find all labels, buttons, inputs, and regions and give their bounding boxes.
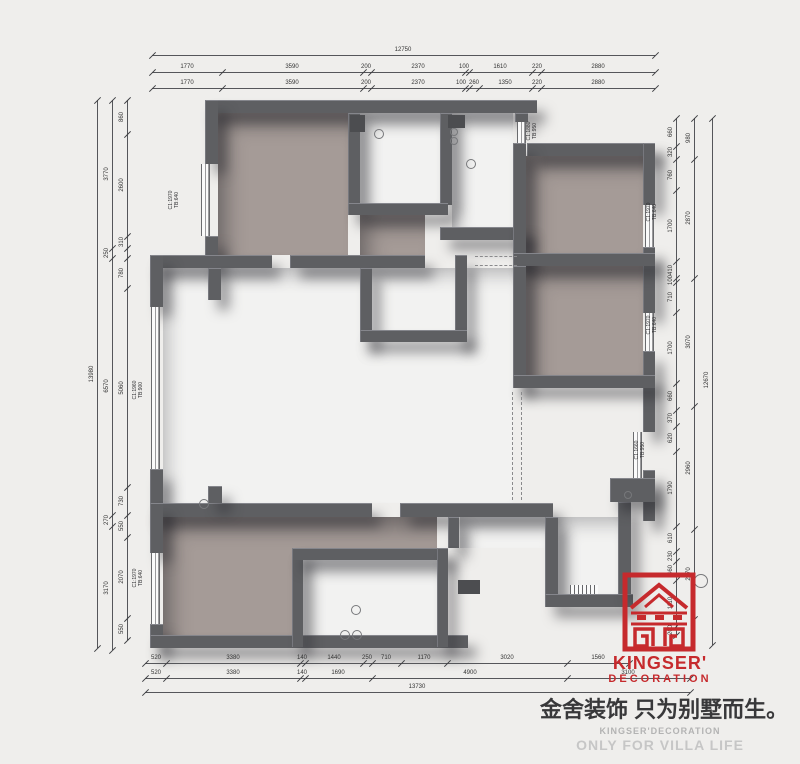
dimension-label: 140 xyxy=(297,670,307,676)
wall-segment xyxy=(348,203,448,215)
hidden-edge-dashed-line xyxy=(512,392,513,500)
dimension-line xyxy=(694,118,695,619)
dimension-label: 3100 xyxy=(621,670,634,676)
wall-segment xyxy=(150,635,468,648)
wall-segment xyxy=(150,503,163,553)
dimension-label: 13730 xyxy=(409,684,426,690)
drain-circle-icon xyxy=(374,129,384,139)
dimension-tick xyxy=(109,647,116,654)
dimension-tick xyxy=(709,642,716,649)
dimension-label: 260 xyxy=(469,80,479,86)
dimension-label: 3380 xyxy=(226,670,239,676)
window-icon xyxy=(517,122,526,143)
column-square xyxy=(350,115,365,132)
floor-plan-canvas: 1275017703590200237010016102202880177035… xyxy=(0,0,800,764)
dimension-label: 200 xyxy=(361,80,371,86)
door-threshold-hatch-icon xyxy=(570,585,598,594)
dimension-label: 250 xyxy=(107,253,117,259)
dimension-label: 3070 xyxy=(689,342,702,348)
dimension-label: 2600 xyxy=(122,185,135,191)
dimension-line xyxy=(152,55,655,56)
window-spec-label: C1:1660TB:950 xyxy=(634,441,646,460)
window-icon xyxy=(151,307,160,469)
room-fill xyxy=(360,113,440,203)
dimension-line xyxy=(127,100,128,640)
wall-segment xyxy=(610,478,655,502)
dimension-label: 3170 xyxy=(107,588,120,594)
dimension-label: 12670 xyxy=(707,380,724,386)
dimension-label: 660 xyxy=(671,396,681,402)
drain-circle-icon xyxy=(450,137,458,145)
dimension-tick xyxy=(691,616,698,623)
wall-segment xyxy=(455,255,467,342)
dimension-tick xyxy=(626,660,633,667)
dimension-label: 220 xyxy=(532,64,542,70)
dimension-label: 220 xyxy=(532,80,542,86)
dimension-label: 200 xyxy=(361,64,371,70)
wall-segment xyxy=(513,253,655,266)
room-fill xyxy=(303,560,437,635)
dimension-label: 3380 xyxy=(226,655,239,661)
dimension-label: 980 xyxy=(689,138,699,144)
dimension-tick xyxy=(687,689,694,696)
dimension-tick xyxy=(652,85,659,92)
dimension-label: 760 xyxy=(671,175,681,181)
dimension-line xyxy=(145,692,690,693)
window-icon xyxy=(151,553,160,624)
room-fill xyxy=(452,113,513,227)
dimension-label: 460 xyxy=(671,570,681,576)
wall-segment xyxy=(513,375,655,388)
brand-footer-slogan: ONLY FOR VILLA LIFE xyxy=(560,737,760,753)
dimension-label: 620 xyxy=(671,438,681,444)
dimension-label: 2370 xyxy=(411,64,424,70)
drain-circle-icon xyxy=(352,630,362,640)
dimension-label: 610 xyxy=(671,538,681,544)
hidden-edge-dashed-line xyxy=(521,392,522,500)
dimension-label: 550 xyxy=(122,629,132,635)
wall-segment xyxy=(513,266,526,387)
drain-circle-icon xyxy=(351,605,361,615)
dimension-label: 1610 xyxy=(493,64,506,70)
dimension-label: 2370 xyxy=(411,80,424,86)
dimension-label: 320 xyxy=(671,152,681,158)
dimension-tick xyxy=(652,52,659,59)
wall-segment xyxy=(545,594,633,607)
dimension-line xyxy=(152,88,655,89)
dimension-label: 4900 xyxy=(463,670,476,676)
wall-segment xyxy=(290,255,425,268)
dimension-label: 100 xyxy=(671,280,681,286)
drain-circle-icon xyxy=(466,159,476,169)
dimension-label: 2880 xyxy=(591,64,604,70)
dimension-label: 3590 xyxy=(285,80,298,86)
dimension-line xyxy=(112,100,113,650)
dimension-label: 140 xyxy=(297,655,307,661)
dimension-label: 2870 xyxy=(689,218,702,224)
wall-segment xyxy=(208,268,221,300)
wall-segment xyxy=(400,503,553,517)
wall-segment xyxy=(643,143,655,205)
brand-subtitle: DECORATION xyxy=(600,673,720,685)
brand-footer-en: KINGSER'DECORATION xyxy=(560,726,760,736)
dimension-label: 270 xyxy=(107,520,117,526)
dimension-label: 1440 xyxy=(327,655,340,661)
dimension-label: 1770 xyxy=(180,64,193,70)
dimension-label: 1770 xyxy=(180,80,193,86)
wall-segment xyxy=(437,548,448,647)
dimension-label: 1110 xyxy=(671,603,683,609)
dimension-line xyxy=(145,678,690,679)
window-spec-label: C1:1970TB:640 xyxy=(168,191,180,210)
hidden-edge-dashed-line xyxy=(475,256,517,257)
window-icon xyxy=(201,164,210,236)
dimension-label: 1170 xyxy=(418,655,431,661)
dimension-label: 250 xyxy=(362,655,372,661)
dimension-label: 660 xyxy=(671,132,681,138)
wall-segment xyxy=(208,486,222,503)
drain-circle-icon xyxy=(450,128,458,136)
dimension-label: 520 xyxy=(151,655,161,661)
brand-tagline-cn: 金舍装饰 只为别墅而生。 xyxy=(540,692,776,724)
drain-circle-icon xyxy=(624,491,632,499)
room-fill xyxy=(558,517,618,594)
dimension-label: 1350 xyxy=(498,80,511,86)
dimension-tick xyxy=(652,69,659,76)
wall-segment xyxy=(150,503,372,517)
room-fill xyxy=(218,113,348,255)
dimension-label: 710 xyxy=(671,297,681,303)
window-spec-label: C1:1970TB:640 xyxy=(646,316,658,335)
dimension-label: 2880 xyxy=(591,80,604,86)
drain-circle-icon xyxy=(199,499,209,509)
wall-segment xyxy=(618,502,631,594)
window-spec-label: C1:1970TB:640 xyxy=(646,203,658,222)
dimension-label: 100 xyxy=(456,80,466,86)
dimension-label: 730 xyxy=(122,501,132,507)
dimension-label: 710 xyxy=(381,655,391,661)
dimension-label: 2960 xyxy=(689,468,702,474)
dimension-label: 550 xyxy=(122,526,132,532)
dimension-label: 230 xyxy=(671,556,681,562)
window-spec-label: C1:1880TB:950 xyxy=(526,122,538,141)
wall-segment xyxy=(150,255,163,307)
dimension-label: 780 xyxy=(122,273,132,279)
dimension-label: 1790 xyxy=(671,488,684,494)
wall-segment xyxy=(205,100,218,164)
dimension-label: 1700 xyxy=(671,348,684,354)
dimension-tick xyxy=(94,645,101,652)
dimension-line xyxy=(152,72,655,73)
wall-segment xyxy=(545,517,558,594)
wall-segment xyxy=(513,143,526,265)
dimension-label: 200 xyxy=(671,630,681,636)
wall-segment xyxy=(150,255,272,268)
window-spec-label: C1:1960TB:900 xyxy=(132,381,144,400)
wall-segment xyxy=(292,548,303,647)
dimension-label: 1700 xyxy=(671,226,684,232)
room-fill xyxy=(360,215,425,255)
room-fill xyxy=(460,517,545,548)
dimension-label: 100 xyxy=(459,64,469,70)
wall-segment xyxy=(360,330,467,342)
column-square xyxy=(448,115,465,128)
room-fill xyxy=(526,266,643,375)
dimension-label: 520 xyxy=(151,670,161,676)
kingser-seal-icon xyxy=(622,572,696,652)
dimension-label: 1690 xyxy=(331,670,344,676)
dimension-tick xyxy=(124,637,131,644)
dimension-label: 860 xyxy=(122,117,132,123)
wall-segment xyxy=(448,517,459,548)
wall-segment xyxy=(527,143,655,156)
dimension-label: 1560 xyxy=(591,655,604,661)
drain-circle-icon xyxy=(340,630,350,640)
wall-segment xyxy=(292,548,448,560)
dimension-label: 2170 xyxy=(689,574,702,580)
hidden-edge-dashed-line xyxy=(475,265,517,266)
wall-segment xyxy=(643,351,655,432)
wall-segment xyxy=(205,100,537,113)
dimension-label: 3590 xyxy=(285,64,298,70)
dimension-label: 3020 xyxy=(500,655,513,661)
column-square xyxy=(458,580,480,594)
dimension-tick xyxy=(687,675,694,682)
room-fill xyxy=(526,156,643,253)
dimension-line xyxy=(145,663,629,664)
dimension-label: 310 xyxy=(122,242,132,248)
dimension-label: 12750 xyxy=(395,47,412,53)
dimension-label: 370 xyxy=(671,418,681,424)
window-spec-label: C1:1970TB:640 xyxy=(132,569,144,588)
